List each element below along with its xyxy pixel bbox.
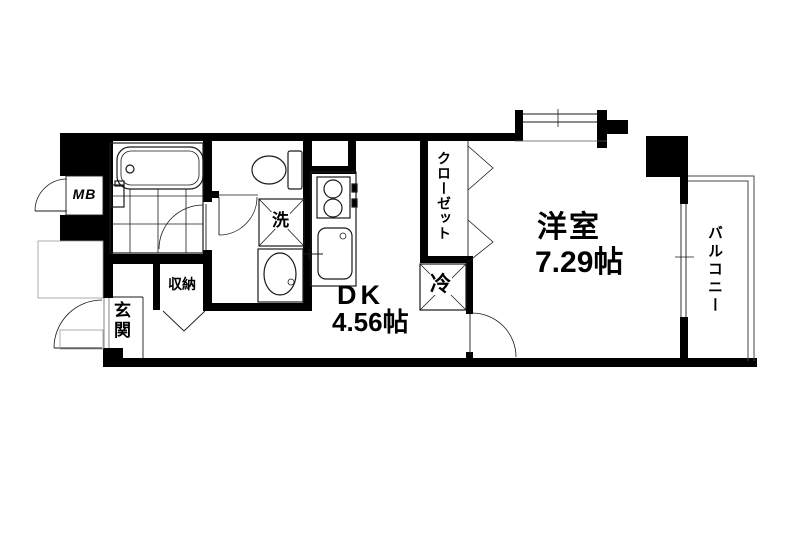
- storage-fold-door: [163, 311, 205, 331]
- bathtub: [117, 147, 203, 189]
- storage-label: 収納: [158, 277, 206, 291]
- meter-box-label: MB: [66, 187, 103, 201]
- stove-knob-2: [352, 199, 357, 207]
- wall-balcony-window-top: [680, 177, 688, 204]
- exterior-alcove: [38, 241, 103, 298]
- balcony-label: バルコニー: [707, 225, 722, 315]
- washroom: [213, 151, 304, 302]
- wall-top: [60, 133, 515, 141]
- wall-balcony-window-bottom: [680, 317, 688, 362]
- mb-door-arc: [35, 179, 67, 211]
- western-room-label: 洋室: [537, 213, 601, 243]
- sink-drain: [340, 233, 346, 239]
- closet-label: クローゼット: [437, 151, 451, 241]
- bathtub-inner: [121, 151, 199, 185]
- bathroom-door-arc: [159, 205, 203, 249]
- wall-below-mb: [60, 215, 103, 241]
- stove-knob-1: [352, 184, 357, 192]
- entrance-label: 玄関: [112, 301, 129, 341]
- toilet-tank: [288, 151, 302, 189]
- dk-area-label: 4.56帖: [332, 309, 409, 335]
- bathroom: [110, 143, 206, 253]
- bathtub-drain: [126, 165, 134, 173]
- wall-closet-left: [420, 141, 428, 262]
- room-door-arc: [472, 313, 516, 357]
- wall-top-right: [605, 120, 628, 134]
- wall-washroom-door-stub: [204, 191, 219, 198]
- refrigerator-label: 冷: [429, 274, 452, 295]
- dk-label: DK: [337, 282, 384, 309]
- wall-left: [103, 133, 113, 298]
- wall-topleft-block: [60, 133, 103, 176]
- wall-door-stub: [466, 352, 473, 366]
- basin-faucet: [288, 279, 294, 285]
- washing-machine-label: 洗: [271, 212, 290, 229]
- floor-plan: MB 玄関 収納 洗 冷 クローゼット DK 4.56帖 洋室 7.29帖 バル…: [0, 0, 800, 548]
- wall-fridge-right: [466, 256, 473, 314]
- closet-fold-door-1: [468, 146, 493, 190]
- toilet-bowl: [252, 156, 286, 184]
- exterior-porch: [60, 330, 103, 349]
- closet-fold-door-2: [468, 220, 493, 262]
- burner-2: [324, 199, 342, 217]
- wall-niche-right: [348, 141, 356, 174]
- closet-fridge: [420, 141, 516, 357]
- burner-1: [324, 180, 342, 198]
- wall-closet-bottom: [420, 256, 472, 263]
- wall-bottom: [103, 358, 757, 367]
- basin-bowl: [264, 253, 296, 295]
- entrance-door-arc: [54, 300, 102, 348]
- kitchen-sink: [318, 228, 352, 279]
- wall-window-jamb-left: [515, 110, 523, 141]
- wall-bath-bottom: [110, 254, 212, 264]
- floor-plan-drawing: [0, 0, 800, 548]
- wall-washroom-bottom: [203, 303, 311, 311]
- washroom-door-arc: [219, 197, 257, 235]
- wall-step-block: [646, 136, 688, 177]
- western-room-area-label: 7.29帖: [535, 248, 623, 278]
